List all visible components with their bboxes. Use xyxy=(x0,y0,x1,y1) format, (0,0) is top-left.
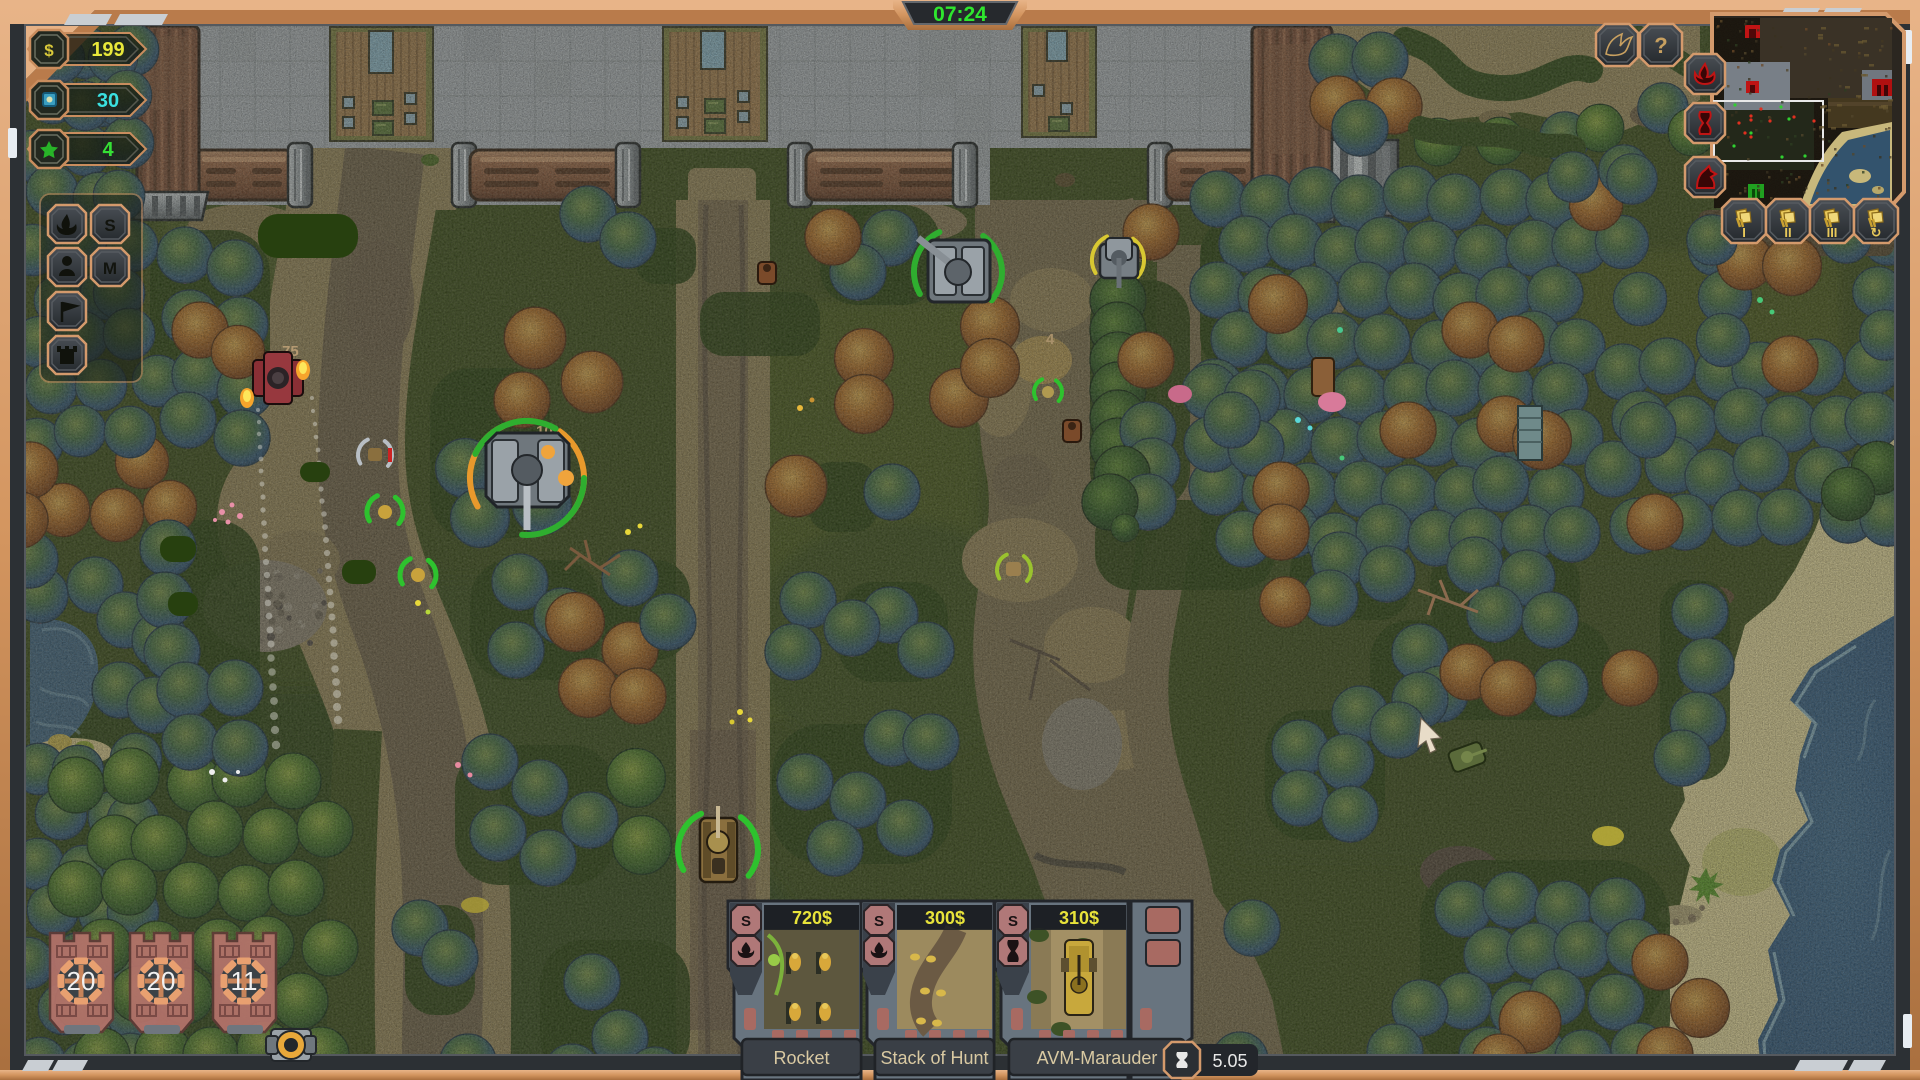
svg-text:20: 20 xyxy=(147,966,176,996)
svg-text:I: I xyxy=(1742,225,1746,240)
svg-text:Rocket: Rocket xyxy=(773,1048,829,1068)
svg-text:300$: 300$ xyxy=(925,908,965,928)
svg-text:4: 4 xyxy=(1046,331,1055,348)
svg-text:310$: 310$ xyxy=(1059,908,1099,928)
svg-text:AVM-Marauder: AVM-Marauder xyxy=(1037,1048,1158,1068)
svg-text:III: III xyxy=(1827,225,1838,240)
svg-text:20: 20 xyxy=(67,966,96,996)
svg-text:720$: 720$ xyxy=(792,908,832,928)
svg-text:5.05: 5.05 xyxy=(1212,1051,1247,1071)
svg-text:?: ? xyxy=(1654,33,1667,58)
svg-text:$: $ xyxy=(44,41,54,60)
svg-text:S: S xyxy=(104,216,115,235)
svg-text:199: 199 xyxy=(91,39,124,61)
svg-text:30: 30 xyxy=(97,90,119,112)
svg-text:S: S xyxy=(874,913,884,930)
svg-text:S: S xyxy=(741,913,751,930)
svg-text:II: II xyxy=(1784,225,1791,240)
svg-text:4: 4 xyxy=(102,139,114,161)
svg-text:11: 11 xyxy=(231,966,258,996)
svg-text:M: M xyxy=(103,259,117,278)
svg-text:↻: ↻ xyxy=(1871,225,1882,240)
svg-text:07:24: 07:24 xyxy=(933,3,987,26)
svg-text:Stack of Hunt: Stack of Hunt xyxy=(880,1048,988,1068)
svg-text:S: S xyxy=(1008,913,1018,930)
